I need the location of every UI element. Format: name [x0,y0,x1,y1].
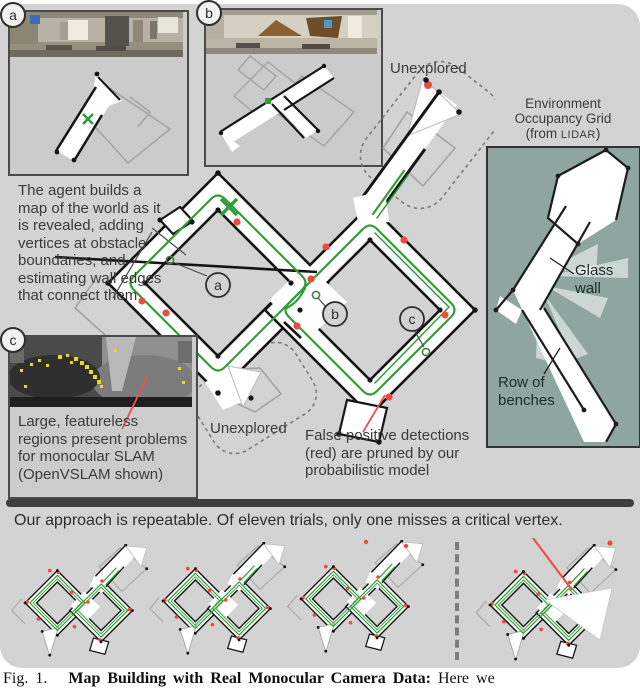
trial-map-2 [150,542,286,655]
panel-c: c Large, featureless regions [8,335,198,499]
caption-fig-number: Fig. 1. [3,670,47,687]
caption-rest: Here we [438,670,495,687]
figure-page: a [0,0,640,689]
map-badge-c: c [409,311,416,327]
map-badge-b: b [331,306,339,322]
row-of-benches-label: Row of benches [498,374,578,409]
section-divider-bar [6,499,634,507]
panel-b-panorama-image [206,10,377,54]
glass-wall-label: Glass wall [575,262,631,297]
false-positive-note: False positive detections (red) are prun… [305,427,475,480]
unexplored-top-label: Unexplored [390,60,467,77]
occupancy-grid-title: Environment Occupancy Grid (from LIDAR) [488,96,638,142]
panel-c-badge: c [0,327,26,353]
unexplored-bottom-label: Unexplored [210,420,287,437]
map-badge-a: a [214,277,222,293]
lidar-text: LIDAR [561,129,596,141]
missed-vertex-leader [533,538,572,590]
trial-strip-separator [455,542,459,660]
figure-caption: Fig. 1. Map Building with Real Monocular… [3,670,637,688]
panel-a-badge: a [0,2,26,28]
panel-c-panorama-image [10,337,192,407]
repeatability-note: Our approach is repeatable. Of eleven tr… [14,512,634,530]
panel-c-note: Large, featureless regions present probl… [18,413,190,483]
lidar-panel: Glass wall Row of benches [486,146,640,448]
trial-map-1 [12,544,148,657]
trial-maps-strip [0,538,640,666]
trial-map-3 [288,540,424,653]
agent-note: The agent builds a map of the world as i… [18,182,170,305]
caption-bold-title: Map Building with Real Monocular Camera … [68,670,431,687]
panel-b-badge: b [196,0,222,26]
